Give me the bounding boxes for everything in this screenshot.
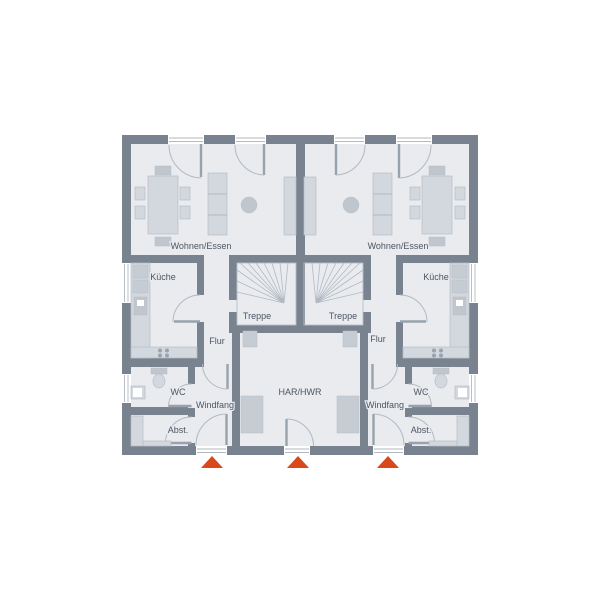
room-label-wohnen-essen-left: Wohnen/Essen: [171, 241, 232, 251]
side-table-right: [343, 197, 359, 213]
entrance-marker-icon: [377, 456, 399, 468]
room-label-har-hwr: HAR/HWR: [279, 387, 322, 397]
room-label-wc-left: WC: [171, 387, 186, 397]
room-label-flur-left: Flur: [209, 336, 225, 346]
entrance-marker-icon: [287, 456, 309, 468]
room-label-wohnen-essen-right: Wohnen/Essen: [368, 241, 429, 251]
room-label-abst-right: Abst.: [411, 425, 432, 435]
room-label-flur-right: Flur: [370, 334, 386, 344]
room-label-kueche-left: Küche: [150, 272, 176, 282]
sideboard-left: [208, 173, 227, 235]
room-label-treppe-right: Treppe: [329, 311, 357, 321]
room-label-windfang-left: Windfang: [196, 400, 234, 410]
sofa-right: [304, 177, 316, 235]
room-label-wc-right: WC: [414, 387, 429, 397]
sofa-left: [284, 177, 296, 235]
entrance-markers: [201, 456, 399, 468]
room-label-kueche-right: Küche: [423, 272, 449, 282]
floor-plan-page: Wohnen/Essen Küche Treppe Flur WC Windfa…: [0, 0, 600, 600]
side-table-left: [241, 197, 257, 213]
sideboard-right: [373, 173, 392, 235]
room-label-windfang-right: Windfang: [366, 400, 404, 410]
room-label-abst-left: Abst.: [168, 425, 189, 435]
entrance-marker-icon: [201, 456, 223, 468]
room-label-treppe-left: Treppe: [243, 311, 271, 321]
floor-plan-svg: Wohnen/Essen Küche Treppe Flur WC Windfa…: [0, 0, 600, 600]
